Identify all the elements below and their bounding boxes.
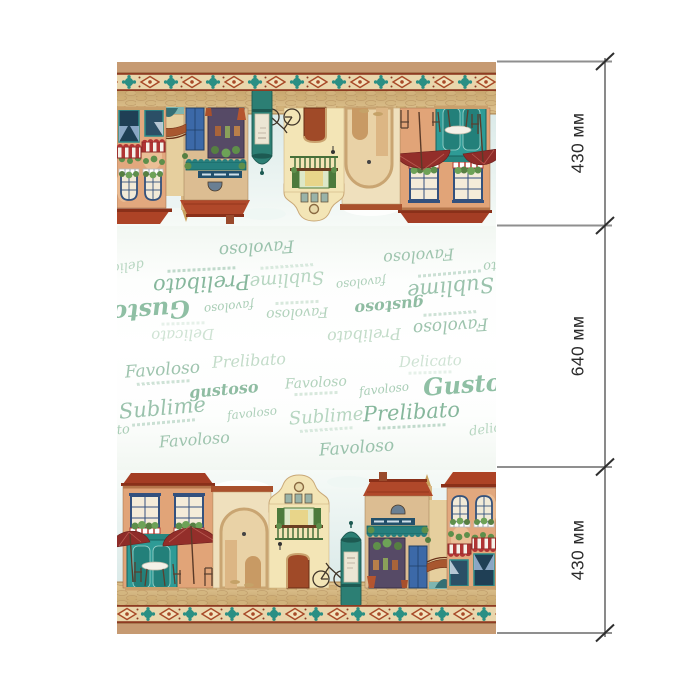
fabric-word: ato [117, 423, 130, 438]
word-subcaption [377, 423, 447, 429]
extension-lines [497, 62, 612, 634]
dimension-label-middle: 640 мм [568, 316, 589, 377]
fabric-word: Gustoso [422, 368, 496, 399]
fabric-word: Favoloso [285, 374, 348, 396]
fabric-panel: FavolosoPrelibatoDelicatogustosoFavoloso… [117, 62, 496, 634]
panel-bottom-half: FavolosoPrelibatoDelicatogustosoFavoloso… [117, 348, 496, 634]
fabric-word: Favoloso [318, 437, 394, 459]
word-subcaption [259, 264, 313, 270]
fabric-word: Sublime [288, 405, 364, 433]
fabric-word: Sublime [406, 269, 495, 302]
fabric-word: Sublime [118, 394, 207, 427]
village-scene-illustration-bottom [117, 470, 496, 634]
fabric-word: Favoloso [159, 430, 231, 451]
village-scene-illustration-top [117, 62, 496, 226]
fabric-word: favoloso [227, 404, 278, 421]
word-subcaption [423, 311, 477, 317]
dimension-label-top: 430 мм [568, 113, 589, 174]
word-subcaption [166, 267, 236, 273]
fabric-word: delicato [117, 257, 145, 277]
word-subcaption [294, 391, 339, 396]
word-subcaption [418, 270, 481, 278]
word-subcaption [136, 379, 190, 385]
fabric-word: Favoloso [412, 310, 489, 337]
product-photo-page: { "dimensions": { "unit": "мм", "segment… [0, 0, 700, 700]
panel-top-half-rotated: FavolosoPrelibatoDelicatogustosoFavoloso… [117, 62, 496, 348]
fabric-word: Prelibato [152, 266, 250, 297]
script-words-area-bottom: FavolosoPrelibatoDelicatogustosoFavoloso… [117, 348, 496, 470]
fabric-word: favoloso [359, 380, 410, 397]
word-subcaption [132, 418, 195, 426]
fabric-word: Gustoso [117, 296, 191, 327]
fabric-word: Prelibato [362, 399, 460, 430]
dimension-label-bottom: 430 мм [568, 520, 589, 581]
fabric-word: Prelibato [327, 325, 402, 345]
fabric-word: favoloso [335, 274, 386, 291]
fabric-word: favoloso [203, 298, 254, 315]
fabric-word: Favoloso [218, 236, 294, 258]
word-subcaption [300, 426, 354, 432]
fabric-word: Favoloso [266, 300, 329, 322]
script-words-area-top: FavolosoPrelibatoDelicatogustosoFavoloso… [117, 226, 496, 348]
word-subcaption [274, 300, 319, 305]
fabric-word: Prelibato [212, 351, 287, 371]
fabric-word: Sublime [249, 263, 325, 291]
fabric-word: Favoloso [383, 246, 455, 267]
